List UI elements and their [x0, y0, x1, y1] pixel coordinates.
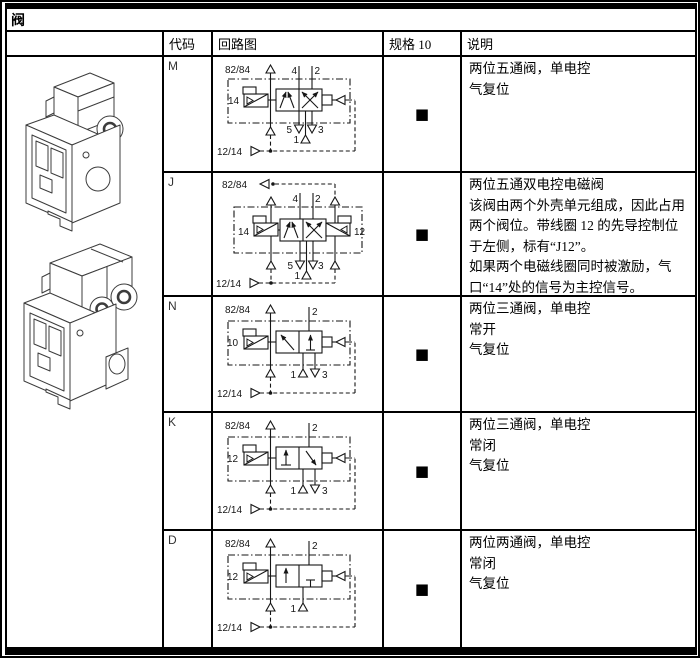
- svg-text:5: 5: [287, 261, 293, 272]
- desc-line: 两位五通阀，单电控: [469, 59, 688, 80]
- desc-line: 气复位: [469, 574, 688, 595]
- svg-text:82/84: 82/84: [225, 65, 250, 76]
- svg-text:12: 12: [354, 227, 366, 238]
- svg-text:12/14: 12/14: [217, 147, 242, 158]
- circuit-cell-n: 82/84 12/14 10: [213, 297, 382, 411]
- table-title: 阀: [7, 9, 695, 30]
- circuit-diagram-5-2-double: 82/84 12/14: [214, 175, 381, 295]
- desc-line: 常闭: [469, 554, 688, 575]
- svg-text:4: 4: [291, 66, 297, 77]
- svg-text:3: 3: [322, 370, 328, 381]
- svg-text:1: 1: [294, 271, 300, 282]
- desc-line: 常开: [469, 320, 688, 341]
- desc-line: 气复位: [469, 340, 688, 361]
- circuit-diagram-5-2-single: 82/84 12/14 14: [214, 59, 381, 171]
- circuit-diagram-3-2-no: 82/84 12/14 10: [214, 299, 381, 411]
- header-desc: 说明: [462, 32, 695, 55]
- svg-text:82/84: 82/84: [225, 421, 250, 432]
- svg-text:5: 5: [286, 125, 292, 136]
- code-cell-j: J: [164, 173, 211, 295]
- svg-text:4: 4: [292, 194, 298, 205]
- circuit-cell-j: 82/84 12/14: [213, 173, 382, 295]
- svg-text:14: 14: [228, 96, 240, 107]
- svg-text:1: 1: [290, 604, 296, 615]
- desc-line: 两位三通阀，单电控: [469, 415, 688, 436]
- valve-table: 阀 代码 回路图 规格 10 说明: [5, 3, 697, 655]
- circuit-diagram-3-2-nc: 82/84 12/14 12: [214, 415, 381, 527]
- svg-text:12/14: 12/14: [217, 505, 242, 516]
- svg-text:12/14: 12/14: [217, 389, 242, 400]
- circuit-diagram-2-2-nc: 82/84 12/14 12: [214, 533, 381, 645]
- svg-text:12: 12: [227, 572, 239, 583]
- svg-text:2: 2: [312, 423, 318, 434]
- desc-line: 常闭: [469, 436, 688, 457]
- spec-cell-m: ■: [384, 57, 460, 171]
- svg-text:3: 3: [318, 261, 324, 272]
- svg-text:1: 1: [290, 370, 296, 381]
- circuit-cell-d: 82/84 12/14 12: [213, 531, 382, 647]
- header-code: 代码: [164, 32, 211, 55]
- svg-text:12/14: 12/14: [216, 279, 241, 290]
- svg-text:12/14: 12/14: [217, 623, 242, 634]
- valve-isometric-double: [10, 233, 160, 417]
- svg-text:3: 3: [318, 125, 324, 136]
- svg-text:12: 12: [227, 454, 239, 465]
- spec-available-marker: ■: [415, 107, 429, 122]
- circuit-cell-k: 82/84 12/14 12: [213, 413, 382, 529]
- desc-cell-m: 两位五通阀，单电控 气复位: [462, 57, 695, 171]
- desc-cell-k: 两位三通阀，单电控 常闭 气复位: [462, 413, 695, 529]
- svg-text:14: 14: [238, 227, 250, 238]
- desc-line: 两位两通阀，单电控: [469, 533, 688, 554]
- spec-available-marker: ■: [415, 347, 429, 362]
- svg-text:82/84: 82/84: [225, 305, 250, 316]
- svg-text:2: 2: [315, 194, 321, 205]
- header-circuit: 回路图: [213, 32, 382, 55]
- spec-cell-k: ■: [384, 413, 460, 529]
- svg-text:2: 2: [312, 307, 318, 318]
- catalog-page: 阀 代码 回路图 规格 10 说明: [0, 0, 700, 658]
- header-image-column: [7, 32, 162, 55]
- spec-available-marker: ■: [415, 227, 429, 242]
- desc-line: 气复位: [469, 456, 688, 477]
- code-cell-k: K: [164, 413, 211, 529]
- spec-cell-j: ■: [384, 173, 460, 295]
- spec-available-marker: ■: [415, 582, 429, 597]
- desc-cell-j: 两位五通双电控电磁阀 该阀由两个外壳单元组成，因此占用两个阀位。带线圈 12 的…: [462, 173, 695, 295]
- svg-text:1: 1: [290, 486, 296, 497]
- circuit-cell-m: 82/84 12/14 14: [213, 57, 382, 171]
- svg-text:82/84: 82/84: [225, 539, 250, 550]
- svg-text:3: 3: [322, 486, 328, 497]
- header-spec: 规格 10: [384, 32, 460, 55]
- svg-text:1: 1: [293, 135, 299, 146]
- svg-text:2: 2: [315, 66, 321, 77]
- code-cell-n: N: [164, 297, 211, 411]
- svg-text:2: 2: [312, 541, 318, 552]
- spec-cell-d: ■: [384, 531, 460, 647]
- desc-line: 两位三通阀，单电控: [469, 299, 688, 320]
- desc-line: 该阀由两个外壳单元组成，因此占用两个阀位。带线圈 12 的先导控制位于左侧，标有…: [469, 196, 688, 258]
- svg-text:10: 10: [227, 338, 239, 349]
- code-cell-d: D: [164, 531, 211, 647]
- spec-cell-n: ■: [384, 297, 460, 411]
- desc-line: 两位五通双电控电磁阀: [469, 175, 688, 196]
- valve-isometric-single: [10, 59, 160, 233]
- desc-cell-d: 两位两通阀，单电控 常闭 气复位: [462, 531, 695, 647]
- desc-cell-n: 两位三通阀，单电控 常开 气复位: [462, 297, 695, 411]
- svg-text:82/84: 82/84: [222, 180, 247, 191]
- spec-available-marker: ■: [415, 464, 429, 479]
- code-cell-m: M: [164, 57, 211, 171]
- product-images-cell: [7, 57, 162, 647]
- desc-line: 气复位: [469, 80, 688, 101]
- desc-line: 如果两个电磁线圈同时被激励，气口“14”处的信号为主控信号。: [469, 257, 688, 295]
